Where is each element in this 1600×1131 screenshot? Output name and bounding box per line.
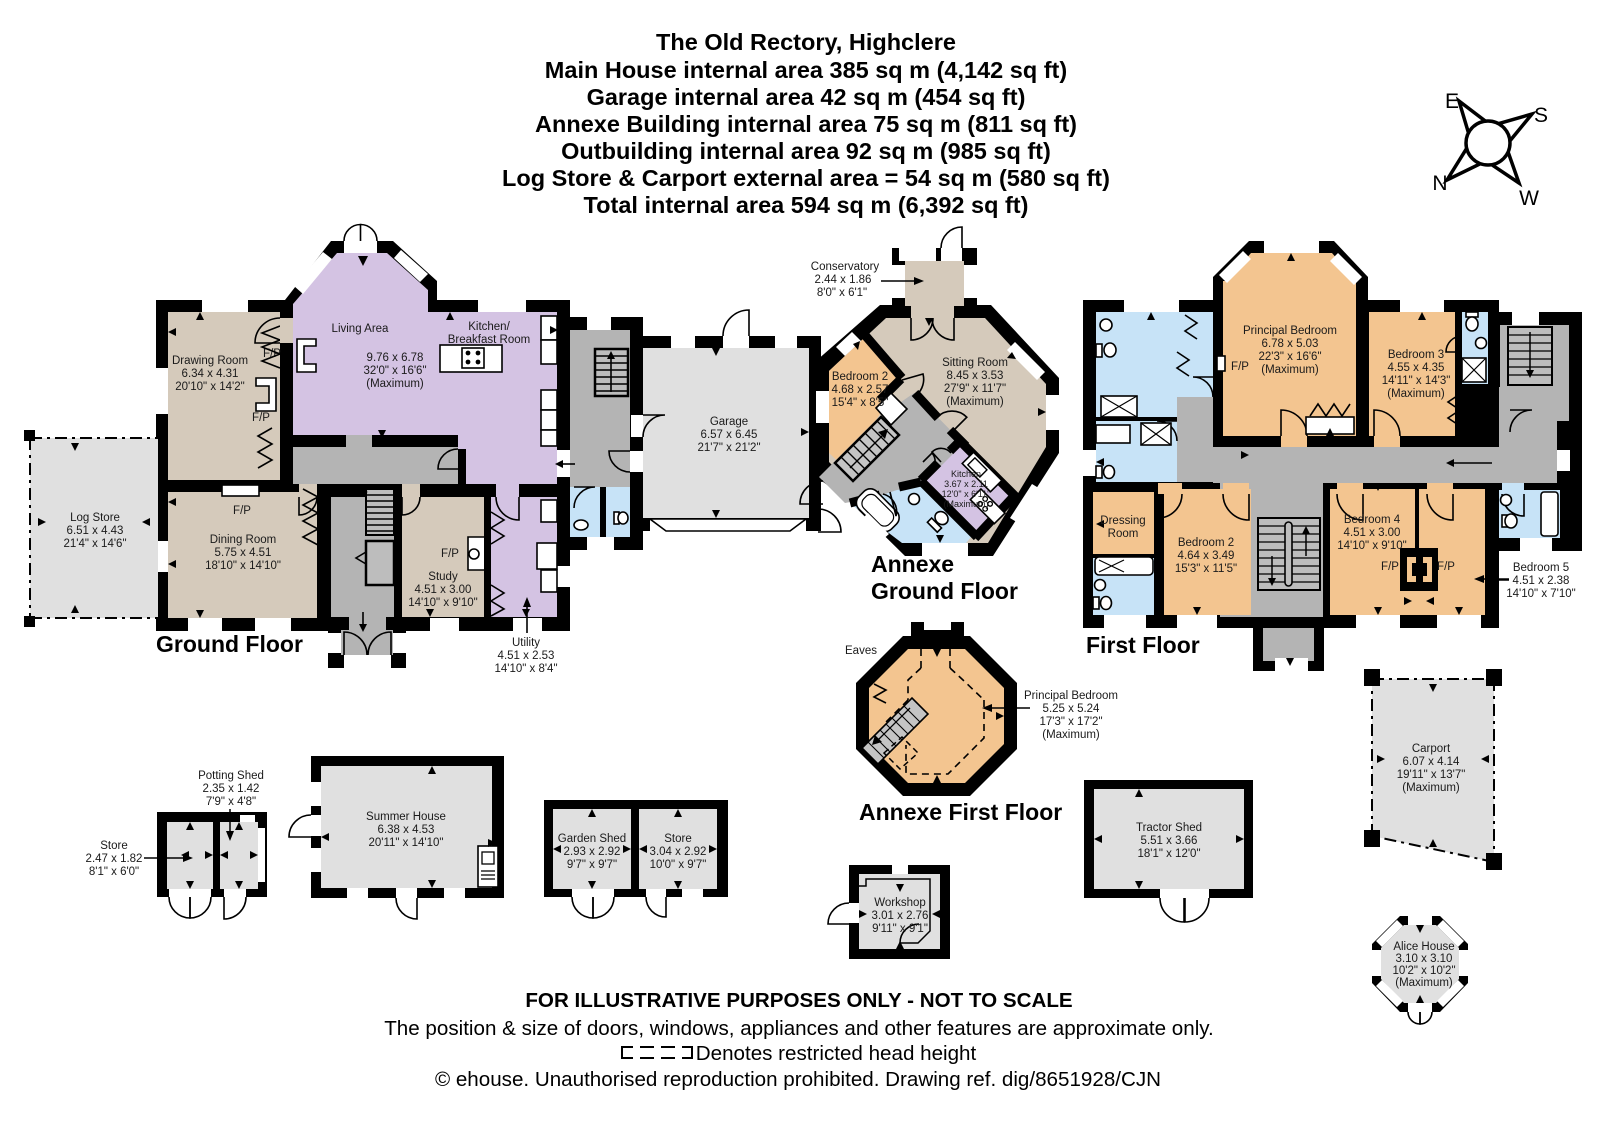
svg-text:4.68 x 2.57: 4.68 x 2.57 xyxy=(832,384,889,396)
svg-text:Study: Study xyxy=(428,571,458,583)
svg-text:Total internal area 594 sq m: Total internal area 594 sq m (6,392 sq f… xyxy=(584,192,1029,218)
svg-text:8'1" x 6'0": 8'1" x 6'0" xyxy=(89,866,139,878)
svg-text:Dressing: Dressing xyxy=(1100,515,1145,527)
svg-text:(Maximum): (Maximum) xyxy=(366,378,424,390)
svg-text:4.51 x 3.00: 4.51 x 3.00 xyxy=(415,584,472,596)
svg-text:Utility: Utility xyxy=(512,637,540,649)
svg-text:21'4" x 14'6": 21'4" x 14'6" xyxy=(63,538,126,550)
svg-text:Drawing Room: Drawing Room xyxy=(172,355,248,367)
svg-text:Ground Floor: Ground Floor xyxy=(871,578,1018,604)
svg-text:14'10" x 9'10": 14'10" x 9'10" xyxy=(408,597,477,609)
svg-text:6.07 x 4.14: 6.07 x 4.14 xyxy=(1403,756,1461,768)
svg-text:15'4" x 8'5": 15'4" x 8'5" xyxy=(832,397,889,409)
svg-text:9.76 x 6.78: 9.76 x 6.78 xyxy=(367,352,424,364)
svg-text:Eaves: Eaves xyxy=(845,645,877,657)
svg-text:The position & size of doors,: The position & size of doors, windows, a… xyxy=(384,1017,1214,1040)
svg-text:Bedroom 5: Bedroom 5 xyxy=(1513,562,1569,574)
svg-text:Conservatory: Conservatory xyxy=(811,261,880,273)
svg-text:Main House internal area 385 s: Main House internal area 385 sq m (4,142… xyxy=(545,57,1067,83)
svg-text:Living Area: Living Area xyxy=(332,323,390,335)
svg-text:3.01 x 2.76: 3.01 x 2.76 xyxy=(872,910,929,922)
svg-text:10'2" x 10'2": 10'2" x 10'2" xyxy=(1392,965,1455,977)
svg-text:Bedroom 2: Bedroom 2 xyxy=(832,371,888,383)
svg-text:F/P: F/P xyxy=(441,548,459,560)
svg-text:5.51 x 3.66: 5.51 x 3.66 xyxy=(1141,835,1198,847)
svg-text:5.25 x 5.24: 5.25 x 5.24 xyxy=(1043,703,1101,715)
svg-text:Room: Room xyxy=(1108,528,1139,540)
svg-text:14'10" x 7'10": 14'10" x 7'10" xyxy=(1506,588,1575,600)
svg-text:Garage internal area 42 sq m (: Garage internal area 42 sq m (454 sq ft) xyxy=(587,84,1026,110)
svg-text:Alice House: Alice House xyxy=(1393,941,1454,953)
svg-text:First Floor: First Floor xyxy=(1086,632,1200,658)
svg-text:(Maximum): (Maximum) xyxy=(1395,977,1453,989)
svg-text:9'7" x 9'7": 9'7" x 9'7" xyxy=(567,859,617,871)
svg-text:10'0" x 9'7": 10'0" x 9'7" xyxy=(650,859,707,871)
svg-text:Kitchen: Kitchen xyxy=(951,469,981,479)
svg-text:Potting Shed: Potting Shed xyxy=(198,770,264,782)
svg-text:21'7" x 21'2": 21'7" x 21'2" xyxy=(697,442,760,454)
svg-text:2.35 x 1.42: 2.35 x 1.42 xyxy=(203,783,260,795)
svg-text:(Maximum): (Maximum) xyxy=(944,499,989,509)
svg-text:Carport: Carport xyxy=(1412,743,1451,755)
svg-text:3.10 x 3.10: 3.10 x 3.10 xyxy=(1396,953,1453,965)
svg-text:6.57 x 6.45: 6.57 x 6.45 xyxy=(701,429,758,441)
svg-text:Log Store & Carport external a: Log Store & Carport external area = 54 s… xyxy=(502,165,1110,191)
svg-text:15'3" x 11'5": 15'3" x 11'5" xyxy=(1175,563,1237,575)
svg-text:F/P: F/P xyxy=(1437,561,1455,573)
svg-text:The Old Rectory, Highclere: The Old Rectory, Highclere xyxy=(656,29,956,55)
svg-text:Bedroom 4: Bedroom 4 xyxy=(1344,514,1401,526)
svg-text:Outbuilding internal area 92 s: Outbuilding internal area 92 sq m (985 s… xyxy=(561,138,1051,164)
svg-text:20'11" x 14'10": 20'11" x 14'10" xyxy=(368,837,443,849)
svg-text:Annexe: Annexe xyxy=(871,551,954,577)
svg-text:Log Store: Log Store xyxy=(70,512,120,524)
svg-text:4.55 x 4.35: 4.55 x 4.35 xyxy=(1388,362,1445,374)
svg-text:(Maximum): (Maximum) xyxy=(946,396,1004,408)
svg-text:19'11" x 13'7": 19'11" x 13'7" xyxy=(1397,769,1466,781)
svg-text:20'10" x 14'2": 20'10" x 14'2" xyxy=(175,381,244,393)
svg-text:Kitchen/: Kitchen/ xyxy=(468,321,510,333)
svg-text:Annexe First Floor: Annexe First Floor xyxy=(859,799,1062,825)
svg-text:12'0" x 6'11": 12'0" x 6'11" xyxy=(942,489,991,499)
svg-text:4.51 x 2.53: 4.51 x 2.53 xyxy=(498,650,555,662)
svg-text:14'10" x 8'4": 14'10" x 8'4" xyxy=(494,663,557,675)
svg-text:27'9" x 11'7": 27'9" x 11'7" xyxy=(944,383,1006,395)
svg-text:5.75 x 4.51: 5.75 x 4.51 xyxy=(215,547,272,559)
svg-text:Denotes restricted head height: Denotes restricted head height xyxy=(696,1042,977,1065)
svg-text:8.45 x 3.53: 8.45 x 3.53 xyxy=(947,370,1004,382)
svg-text:Ground Floor: Ground Floor xyxy=(156,631,303,657)
svg-text:18'10" x 14'10": 18'10" x 14'10" xyxy=(205,560,281,572)
svg-text:E: E xyxy=(1445,90,1459,113)
svg-text:6.34 x 4.31: 6.34 x 4.31 xyxy=(182,368,239,380)
svg-text:3.04 x 2.92: 3.04 x 2.92 xyxy=(650,846,707,858)
svg-text:14'10" x 9'10": 14'10" x 9'10" xyxy=(1337,540,1406,552)
svg-text:Workshop: Workshop xyxy=(874,897,926,909)
svg-text:Tractor Shed: Tractor Shed xyxy=(1136,822,1202,834)
svg-text:4.51 x 3.00: 4.51 x 3.00 xyxy=(1344,527,1401,539)
svg-text:(Maximum): (Maximum) xyxy=(1402,782,1460,794)
svg-text:W: W xyxy=(1519,187,1539,210)
svg-text:2.93 x 2.92: 2.93 x 2.92 xyxy=(564,846,621,858)
svg-text:7'9" x 4'8": 7'9" x 4'8" xyxy=(206,796,256,808)
svg-text:4.51 x 2.38: 4.51 x 2.38 xyxy=(1513,575,1570,587)
svg-text:17'3" x 17'2": 17'3" x 17'2" xyxy=(1039,716,1102,728)
svg-text:Store: Store xyxy=(100,840,128,852)
svg-text:F/P: F/P xyxy=(1381,561,1399,573)
svg-text:S: S xyxy=(1534,104,1548,127)
svg-text:Bedroom 3: Bedroom 3 xyxy=(1388,349,1444,361)
svg-text:Bedroom 2: Bedroom 2 xyxy=(1178,537,1234,549)
svg-text:Breakfast Room: Breakfast Room xyxy=(448,334,530,346)
svg-text:(Maximum): (Maximum) xyxy=(1387,388,1445,400)
svg-text:(Maximum): (Maximum) xyxy=(1261,364,1319,376)
svg-text:18'1" x 12'0": 18'1" x 12'0" xyxy=(1137,848,1200,860)
svg-text:© ehouse. Unauthorised reprodu: © ehouse. Unauthorised reproduction proh… xyxy=(435,1068,1161,1091)
svg-text:6.78 x 5.03: 6.78 x 5.03 xyxy=(1262,338,1319,350)
svg-text:2.47 x 1.82: 2.47 x 1.82 xyxy=(86,853,143,865)
svg-text:F/P: F/P xyxy=(1231,361,1249,373)
svg-text:Annexe Building internal area: Annexe Building internal area 75 sq m (8… xyxy=(535,111,1077,137)
svg-text:9'11" x 9'1": 9'11" x 9'1" xyxy=(872,923,928,935)
svg-text:14'11" x 14'3": 14'11" x 14'3" xyxy=(1382,375,1451,387)
svg-text:F/P: F/P xyxy=(252,412,270,424)
svg-text:Garage: Garage xyxy=(710,416,748,428)
svg-text:N: N xyxy=(1432,172,1447,195)
svg-text:6.51 x 4.43: 6.51 x 4.43 xyxy=(67,525,124,537)
svg-text:3.67 x 2.11: 3.67 x 2.11 xyxy=(944,479,988,489)
svg-text:Principal Bedroom: Principal Bedroom xyxy=(1024,690,1118,702)
svg-text:F/P: F/P xyxy=(233,505,251,517)
svg-text:2.44 x 1.86: 2.44 x 1.86 xyxy=(815,274,872,286)
svg-text:Summer House: Summer House xyxy=(366,811,446,823)
svg-text:4.64 x 3.49: 4.64 x 3.49 xyxy=(1178,550,1235,562)
svg-text:8'0" x 6'1": 8'0" x 6'1" xyxy=(817,287,867,299)
svg-text:Dining Room: Dining Room xyxy=(210,534,276,546)
svg-text:32'0" x 16'6": 32'0" x 16'6" xyxy=(363,365,426,377)
svg-text:6.38 x 4.53: 6.38 x 4.53 xyxy=(378,824,435,836)
svg-text:FOR ILLUSTRATIVE PURPOSES ONLY: FOR ILLUSTRATIVE PURPOSES ONLY - NOT TO … xyxy=(525,989,1072,1012)
svg-text:Principal Bedroom: Principal Bedroom xyxy=(1243,325,1337,337)
svg-text:Garden Shed: Garden Shed xyxy=(558,833,626,845)
svg-text:Store: Store xyxy=(664,833,692,845)
svg-text:(Maximum): (Maximum) xyxy=(1042,729,1100,741)
svg-text:22'3" x 16'6": 22'3" x 16'6" xyxy=(1258,351,1321,363)
svg-text:Sitting Room: Sitting Room xyxy=(942,357,1008,369)
